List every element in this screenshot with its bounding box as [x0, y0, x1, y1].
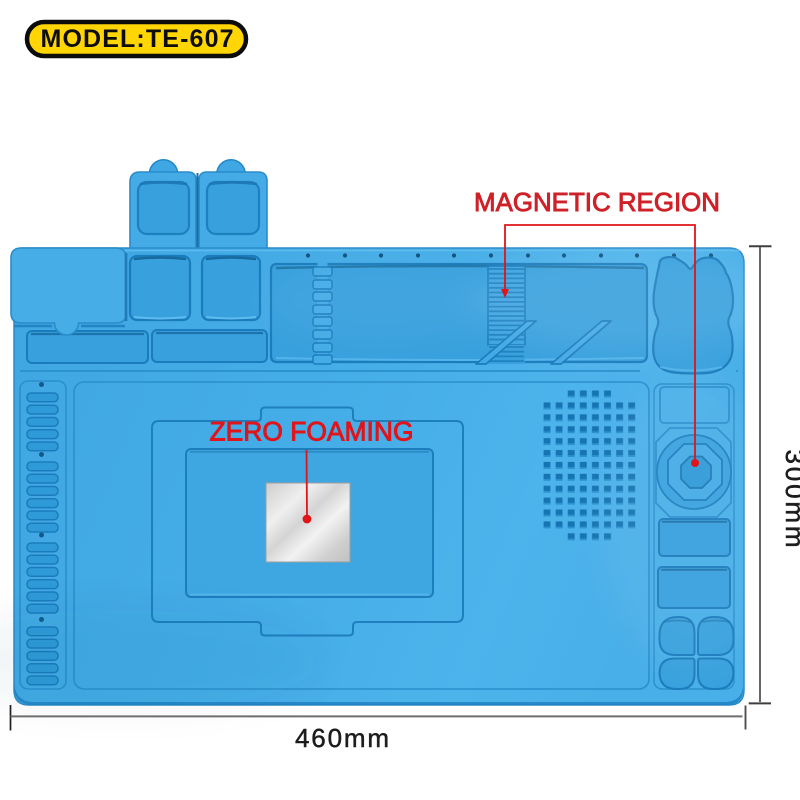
svg-text:MAGNETIC REGION: MAGNETIC REGION: [474, 187, 720, 217]
svg-text:460mm: 460mm: [295, 723, 389, 753]
svg-text:MODEL:TE-607: MODEL:TE-607: [41, 25, 234, 53]
svg-text:ZERO FOAMING: ZERO FOAMING: [210, 417, 414, 447]
